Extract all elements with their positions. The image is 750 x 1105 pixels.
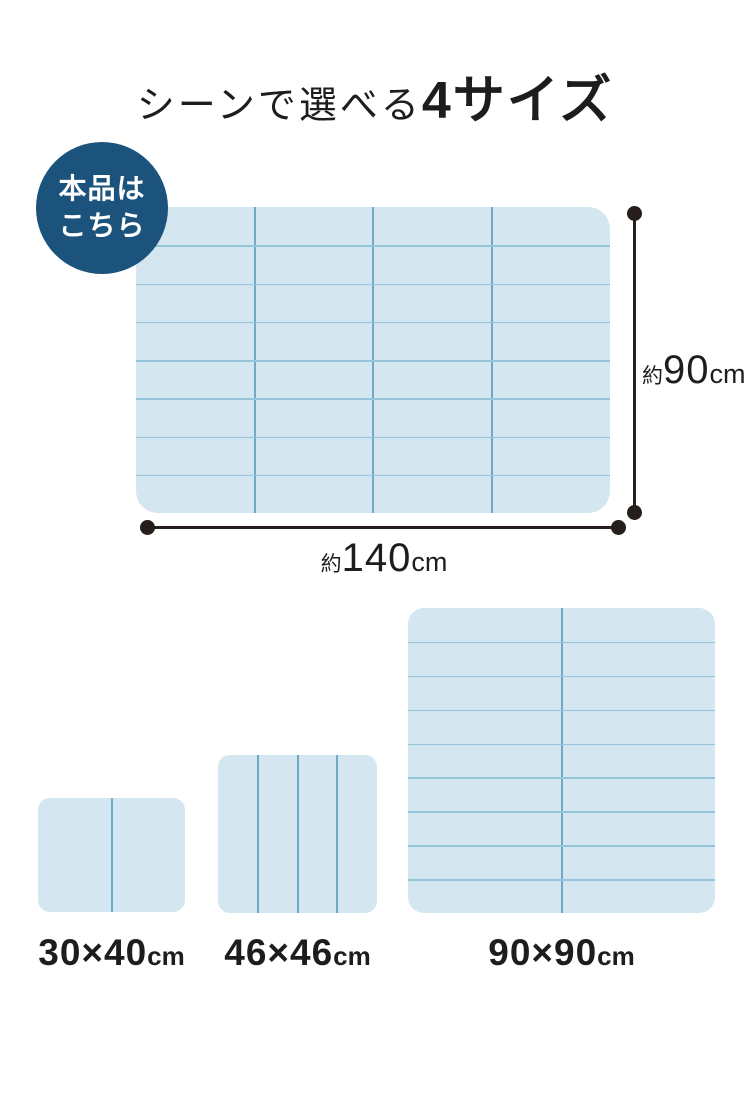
- size-comparison-figure: シーンで選べる4サイズ 本品は こちら 約 90 cm 約 140 cm 30×…: [0, 0, 750, 1105]
- size-unit: cm: [147, 941, 185, 972]
- height-unit: cm: [710, 359, 746, 390]
- size-value: 46×46: [224, 932, 333, 974]
- badge-line-2: こちら: [58, 208, 145, 245]
- fold-line-horizontal: [408, 642, 715, 644]
- fold-line-horizontal: [408, 744, 715, 746]
- badge-line-1: 本品は: [58, 171, 145, 208]
- width-dimension-line: [148, 526, 620, 529]
- size-value: 90×90: [488, 932, 597, 974]
- fold-line-horizontal: [408, 710, 715, 712]
- size-label-90x90: 90×90 cm: [408, 932, 715, 974]
- mat-140x90: [136, 207, 610, 513]
- size-unit: cm: [597, 941, 635, 972]
- size-label-30x40: 30×40 cm: [38, 932, 185, 974]
- fold-line-horizontal: [136, 437, 610, 439]
- width-value: 140: [342, 536, 412, 581]
- page-title-highlight: 4サイズ: [422, 72, 613, 130]
- fold-line-vertical: [561, 608, 563, 913]
- dimension-endpoint-dot: [140, 520, 155, 535]
- mat-46x46: [218, 755, 377, 913]
- width-dimension-label: 約 140 cm: [148, 536, 620, 581]
- mat-90x90: [408, 608, 715, 913]
- fold-line-horizontal: [408, 845, 715, 847]
- size-label-46x46: 46×46 cm: [218, 932, 377, 974]
- size-value: 30×40: [38, 932, 147, 974]
- width-approx-text: 約: [321, 548, 342, 578]
- product-badge: 本品は こちら: [36, 142, 168, 274]
- height-dimension-line: [633, 213, 636, 513]
- width-unit: cm: [411, 547, 447, 578]
- height-approx-text: 約: [642, 360, 663, 390]
- fold-line-vertical: [297, 755, 299, 913]
- fold-line-vertical: [257, 755, 259, 913]
- fold-line-horizontal: [136, 475, 610, 477]
- fold-line-horizontal: [136, 284, 610, 286]
- dimension-endpoint-dot: [611, 520, 626, 535]
- fold-line-horizontal: [136, 398, 610, 400]
- page-title: シーンで選べる4サイズ: [0, 58, 750, 133]
- size-unit: cm: [333, 941, 371, 972]
- fold-line-vertical: [111, 798, 113, 912]
- fold-line-vertical: [336, 755, 338, 913]
- fold-line-horizontal: [408, 811, 715, 813]
- fold-line-horizontal: [408, 879, 715, 881]
- fold-line-horizontal: [408, 676, 715, 678]
- page-title-text: シーンで選べる: [137, 85, 422, 127]
- mat-30x40: [38, 798, 185, 912]
- fold-line-horizontal: [408, 777, 715, 779]
- fold-line-horizontal: [136, 322, 610, 324]
- fold-line-horizontal: [136, 360, 610, 362]
- fold-line-horizontal: [136, 245, 610, 247]
- dimension-endpoint-dot: [627, 206, 642, 221]
- height-value: 90: [663, 348, 710, 393]
- dimension-endpoint-dot: [627, 505, 642, 520]
- height-dimension-label: 約 90 cm: [642, 348, 746, 393]
